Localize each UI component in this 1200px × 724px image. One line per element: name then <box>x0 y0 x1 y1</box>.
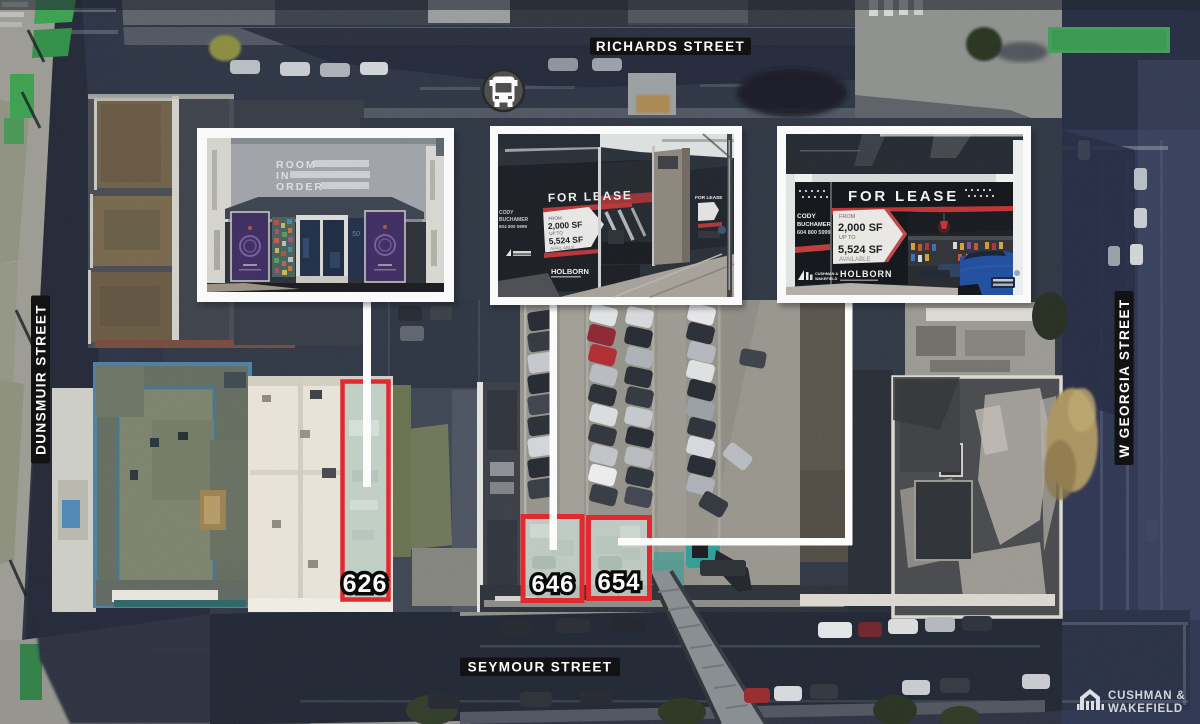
svg-text:RICHARDS STREET: RICHARDS STREET <box>596 39 745 54</box>
svg-text:BUCHAMER: BUCHAMER <box>797 222 832 228</box>
svg-text:DUNSMUIR STREET: DUNSMUIR STREET <box>34 304 49 455</box>
svg-text:50: 50 <box>352 231 360 238</box>
svg-text:CUSHMAN &: CUSHMAN & <box>815 272 838 276</box>
svg-text:UP TO: UP TO <box>839 235 856 241</box>
svg-text:FOR LEASE: FOR LEASE <box>548 188 633 205</box>
svg-text:FOR LEASE: FOR LEASE <box>848 188 959 205</box>
svg-text:646: 646 <box>531 571 574 598</box>
svg-text:2,000 SF: 2,000 SF <box>838 222 883 234</box>
svg-text:HOLBORN: HOLBORN <box>551 267 589 276</box>
svg-text:CUSHMAN &: CUSHMAN & <box>1108 690 1185 702</box>
svg-text:W GEORGIA STREET: W GEORGIA STREET <box>1117 298 1132 457</box>
svg-text:BUCHAMER: BUCHAMER <box>499 217 529 223</box>
svg-text:WAKEFIELD: WAKEFIELD <box>1108 703 1183 715</box>
svg-text:AVAILABLE: AVAILABLE <box>839 257 870 263</box>
svg-text:604 800 5999: 604 800 5999 <box>797 230 831 236</box>
svg-text:FROM: FROM <box>839 214 856 220</box>
svg-text:5,524 SF: 5,524 SF <box>838 244 883 256</box>
svg-text:654: 654 <box>597 569 640 596</box>
svg-text:626: 626 <box>343 570 388 598</box>
svg-text:WAKEFIELD: WAKEFIELD <box>815 277 838 281</box>
svg-text:CODY: CODY <box>499 210 514 216</box>
svg-text:HOLBORN: HOLBORN <box>840 269 893 279</box>
svg-text:ORDER: ORDER <box>276 181 324 193</box>
svg-text:2,000 SF: 2,000 SF <box>548 219 583 231</box>
svg-text:SEYMOUR STREET: SEYMOUR STREET <box>468 660 613 675</box>
svg-text:604 800 5999: 604 800 5999 <box>499 224 528 229</box>
svg-text:CODY: CODY <box>797 213 816 220</box>
svg-text:FOR LEASE: FOR LEASE <box>695 195 723 201</box>
